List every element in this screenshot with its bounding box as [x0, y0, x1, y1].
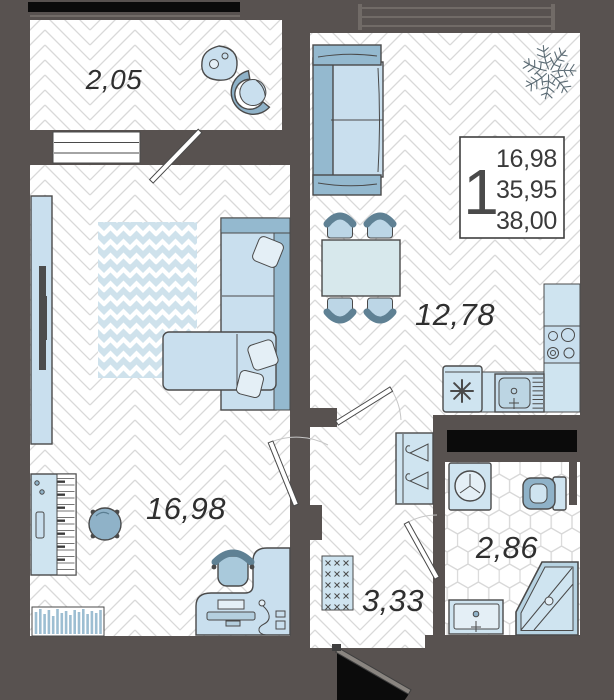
- tv-console: [31, 196, 52, 444]
- living-balcony-window: [53, 132, 140, 163]
- toilet-icon: [523, 477, 566, 510]
- floor-plan: 1 16,98 35,95 38,00: [0, 0, 614, 700]
- pouf-icon: [89, 508, 121, 540]
- bookshelf-icon: [32, 607, 104, 636]
- kitchen-sink-icon: [495, 374, 544, 412]
- living-area-label: 16,98: [146, 491, 226, 526]
- piano-icon: [31, 474, 76, 575]
- balcony-table-icon: [202, 46, 237, 80]
- living-area-value: 16,98: [496, 145, 557, 173]
- towel-rail: [569, 461, 577, 505]
- total-area-value: 38,00: [496, 207, 557, 235]
- balcony-area-label: 2,05: [85, 64, 143, 95]
- hallway-area-label: 3,33: [362, 583, 424, 618]
- kitchen-area-label: 12,78: [415, 297, 495, 332]
- kitchen-sofa-icon: [313, 45, 383, 195]
- dining-table-icon: [322, 240, 400, 296]
- bathroom-sink-icon: [449, 600, 503, 634]
- area-without-balcony-value: 35,95: [496, 176, 557, 204]
- stove-icon: [544, 326, 580, 363]
- mouse-icon: [259, 600, 265, 606]
- fridge-icon: [443, 366, 482, 412]
- washing-machine-icon: [449, 463, 491, 510]
- vent-shaft: [447, 430, 577, 452]
- kitchen-window: [358, 4, 555, 30]
- floor-plan-page: 1 16,98 35,95 38,00: [0, 0, 614, 700]
- hall-wardrobe-icon: [396, 433, 433, 504]
- rooms-count: 1: [463, 156, 499, 228]
- shoe-mat-icon: [322, 556, 353, 610]
- info-box: 1 16,98 35,95 38,00: [460, 137, 564, 238]
- bathroom-area-label: 2,86: [475, 530, 539, 565]
